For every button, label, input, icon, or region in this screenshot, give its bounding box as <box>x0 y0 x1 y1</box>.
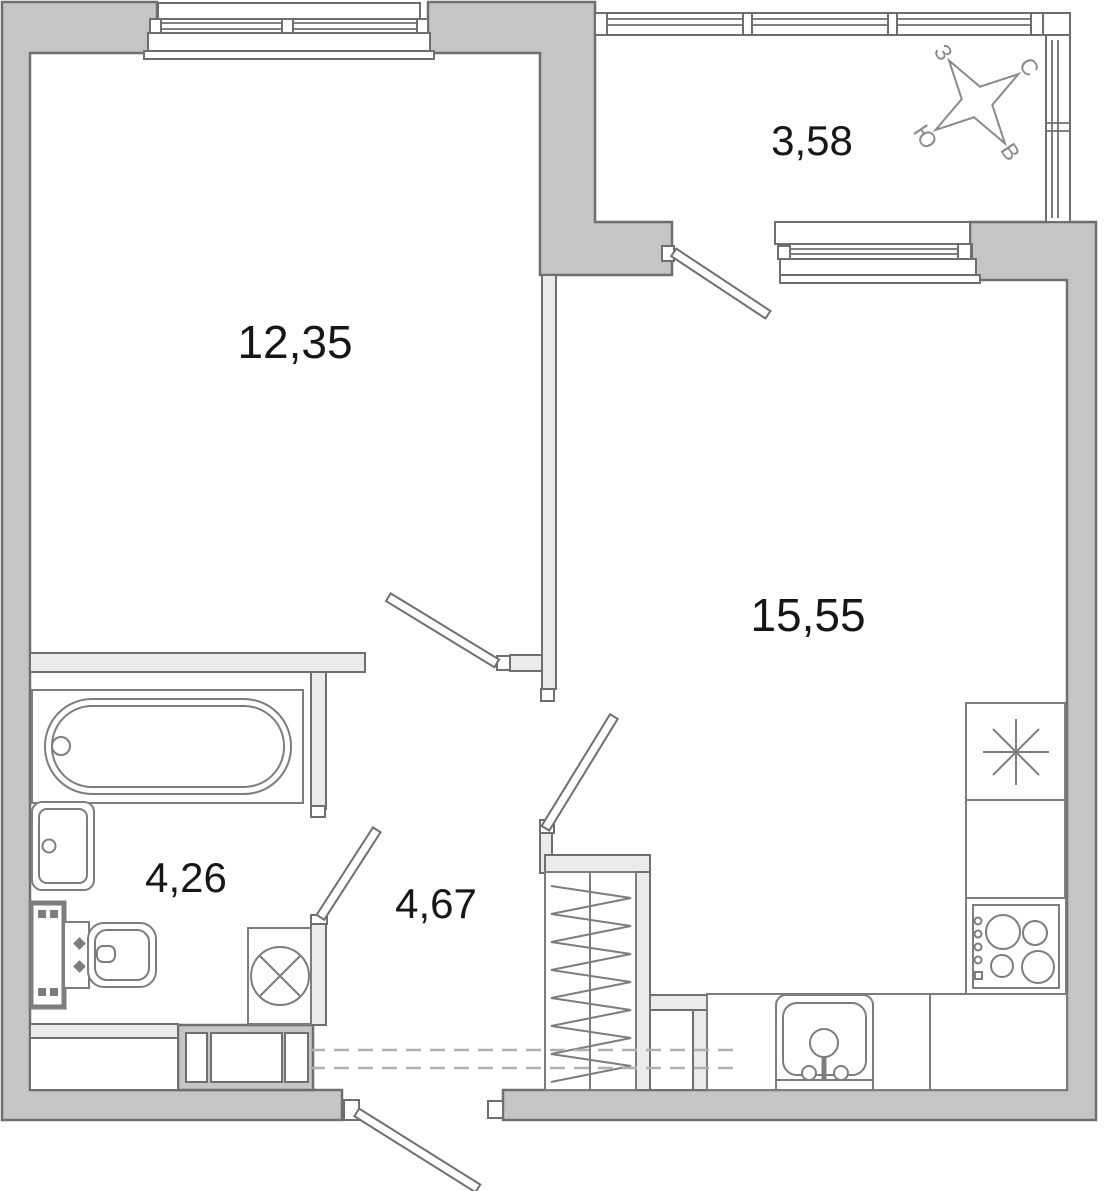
kitchen-sink <box>776 995 873 1090</box>
window-sill-lip <box>780 275 980 283</box>
washbasin-drain <box>43 840 56 853</box>
window-kitchen-balcony <box>775 222 980 283</box>
toilet-flush <box>97 946 115 962</box>
duct-shaft-1 <box>186 1033 207 1082</box>
partition-closet-top <box>545 855 650 872</box>
wardrobe <box>545 872 636 1090</box>
bathtub-drain <box>52 737 70 755</box>
compass-east-label: В <box>995 138 1025 165</box>
area-label-balcony: 3,58 <box>771 117 853 164</box>
window-sill <box>148 33 430 51</box>
compass-south-label: Ю <box>908 120 943 154</box>
kitchen-counter-corner <box>930 994 1067 1090</box>
glazing-corner-post <box>1043 13 1070 35</box>
window-sill-lip <box>144 51 434 59</box>
entrance-door-leaf <box>354 1109 480 1191</box>
duct-shaft-3 <box>285 1033 308 1082</box>
area-label-room: 12,35 <box>237 316 352 368</box>
window-mullion <box>282 19 293 33</box>
faucet <box>810 1029 838 1057</box>
burner <box>1023 921 1047 945</box>
toilet-cistern-frame <box>31 903 64 1007</box>
room-door-leaf <box>386 593 499 667</box>
duct-shaft-2 <box>211 1033 282 1082</box>
partition-bathroom-top <box>30 653 365 672</box>
burner <box>986 915 1020 949</box>
bathroom-door-leaf <box>317 827 381 919</box>
bathroom-bottom-niche <box>30 1038 178 1090</box>
balcony-glazing-top <box>595 13 1043 35</box>
toilet-tank <box>64 922 89 988</box>
partition-niche-top <box>650 995 707 1010</box>
window-sill <box>780 259 976 275</box>
window-frame <box>778 244 972 259</box>
balcony-door-leaf <box>671 249 770 319</box>
partition-bathroom-bottom-band <box>30 1024 178 1038</box>
window-room-top <box>144 3 434 59</box>
toilet <box>31 903 156 1007</box>
partition-bathroom-right-lower <box>311 917 326 1025</box>
area-labels: 12,35 3,58 15,55 4,26 4,67 <box>145 117 865 927</box>
kitchen-door-leaf <box>542 714 618 830</box>
burner <box>991 955 1013 977</box>
glazing-mullion <box>743 13 752 35</box>
fridge <box>966 703 1065 800</box>
bathtub <box>32 690 303 803</box>
partition-room-divider <box>542 275 556 689</box>
partition-bathroom-right-upper <box>311 672 326 809</box>
area-label-hallway: 4,67 <box>395 880 477 927</box>
washing-machine <box>248 928 311 1024</box>
stove <box>966 898 1066 995</box>
glazing-mullion <box>888 13 897 35</box>
wall-top-divider <box>428 2 672 275</box>
floor-plan-page: 12,35 3,58 15,55 4,26 4,67 С В Ю З <box>0 0 1108 1191</box>
compass-west-label: З <box>929 39 958 65</box>
compass-north-label: С <box>1014 53 1045 81</box>
burner <box>1022 951 1054 983</box>
window-outer-ledge <box>158 3 420 19</box>
window-outer-ledge <box>775 222 970 244</box>
area-label-kitchen-living: 15,55 <box>750 589 865 641</box>
partition-closet-right <box>636 872 650 1090</box>
kitchen-counter-tall <box>966 800 1065 898</box>
partition-door-stub <box>510 655 542 671</box>
area-label-bathroom: 4,26 <box>145 854 227 901</box>
washbasin <box>32 802 94 890</box>
floor-plan-drawing: 12,35 3,58 15,55 4,26 4,67 С В Ю З <box>0 0 1108 1191</box>
